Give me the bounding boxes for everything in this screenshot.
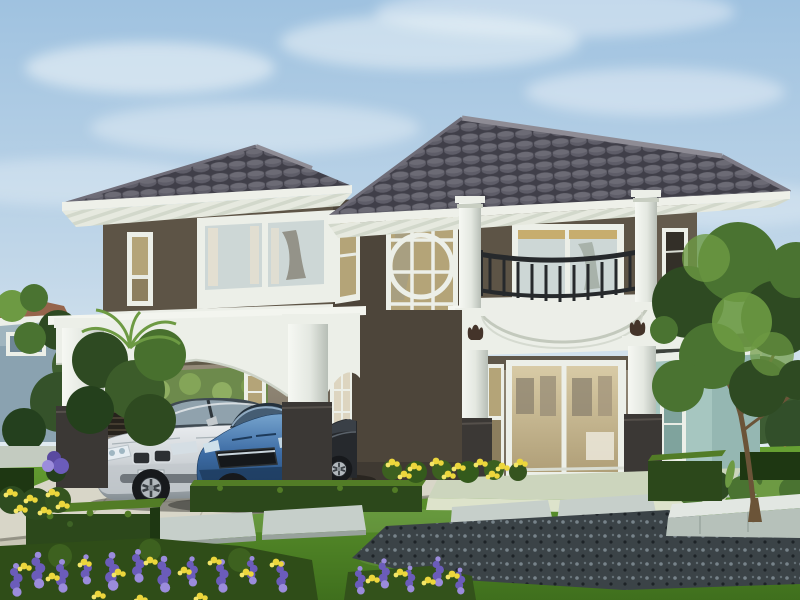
rendering-canvas (0, 0, 800, 600)
palm-and-shrubs (66, 310, 186, 446)
window-corner (197, 210, 335, 309)
window-narrow-left (127, 232, 153, 306)
house-rendering (0, 0, 800, 600)
entry-sliding-doors (506, 360, 626, 478)
center-wall-ground (352, 310, 462, 480)
stepping-stone (262, 505, 366, 540)
carport-column-right (282, 314, 334, 482)
cloud (525, 68, 785, 116)
hedge-row-behind-lawn (190, 480, 426, 512)
cloud (25, 42, 275, 94)
round-column-left (455, 196, 485, 316)
